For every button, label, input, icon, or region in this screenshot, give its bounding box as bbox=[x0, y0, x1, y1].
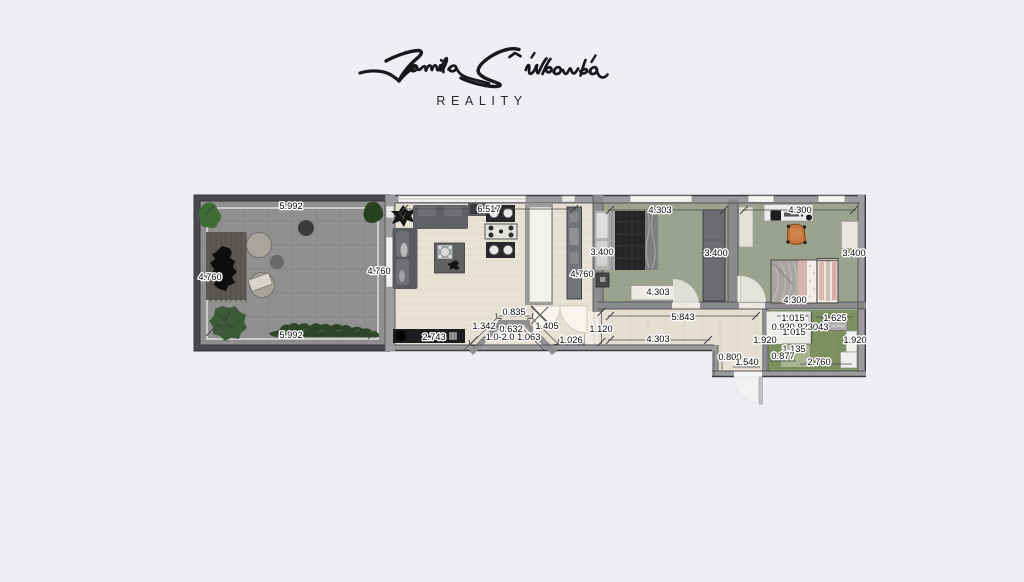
svg-text:5.992: 5.992 bbox=[279, 201, 302, 211]
svg-text:4.303: 4.303 bbox=[646, 287, 669, 297]
svg-text:2.743: 2.743 bbox=[422, 332, 445, 342]
svg-text:REALITY: REALITY bbox=[436, 94, 527, 108]
svg-text:3.400: 3.400 bbox=[590, 247, 613, 257]
svg-text:6.517: 6.517 bbox=[477, 204, 500, 214]
svg-text:3.400: 3.400 bbox=[842, 248, 865, 258]
svg-text:1.920: 1.920 bbox=[843, 335, 866, 345]
svg-text:4.760: 4.760 bbox=[570, 269, 593, 279]
svg-text:4.760: 4.760 bbox=[367, 266, 390, 276]
svg-text:1.015: 1.015 bbox=[782, 327, 805, 337]
svg-text:5.992: 5.992 bbox=[279, 330, 302, 340]
svg-text:4.303: 4.303 bbox=[648, 205, 671, 215]
svg-text:4.300: 4.300 bbox=[788, 205, 811, 215]
svg-text:1.026: 1.026 bbox=[559, 335, 582, 345]
svg-text:1.342: 1.342 bbox=[472, 321, 495, 331]
svg-text:1.0-2.0 1.063: 1.0-2.0 1.063 bbox=[486, 332, 541, 342]
svg-text:1.120: 1.120 bbox=[589, 324, 612, 334]
svg-text:0.835: 0.835 bbox=[502, 307, 525, 317]
svg-text:3.400: 3.400 bbox=[704, 248, 727, 258]
svg-text:4.303: 4.303 bbox=[646, 334, 669, 344]
svg-text:2.760: 2.760 bbox=[807, 357, 830, 367]
svg-text:0.877: 0.877 bbox=[771, 351, 794, 361]
svg-text:1.540: 1.540 bbox=[735, 357, 758, 367]
svg-text:5.843: 5.843 bbox=[671, 312, 694, 322]
svg-text:4.760: 4.760 bbox=[198, 272, 221, 282]
svg-text:4.300: 4.300 bbox=[783, 295, 806, 305]
svg-text:1.405: 1.405 bbox=[535, 321, 558, 331]
svg-text:1.920: 1.920 bbox=[753, 335, 776, 345]
